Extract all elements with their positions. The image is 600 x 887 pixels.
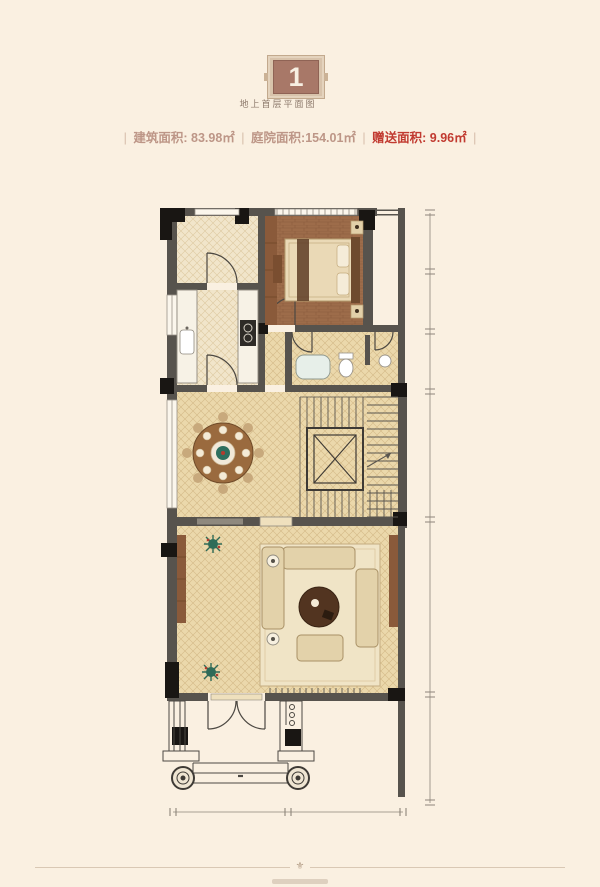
sideboard-symbol bbox=[197, 519, 243, 525]
column-base bbox=[172, 767, 194, 789]
entry-double-door bbox=[208, 701, 265, 729]
kitchen-sink bbox=[180, 330, 194, 354]
toilet bbox=[339, 359, 353, 377]
crest-ornament-icon: ⚜ bbox=[290, 862, 311, 872]
floor-plan-drawing bbox=[145, 195, 455, 825]
floorplan-page: { "page": {"background": "#faf0e1"}, "he… bbox=[0, 0, 600, 887]
opening-threshold bbox=[260, 517, 292, 526]
porch-steps bbox=[193, 763, 288, 783]
dimension-line-right bbox=[425, 210, 435, 805]
pillow bbox=[337, 273, 349, 295]
bathtub bbox=[296, 355, 330, 379]
pillow bbox=[337, 245, 349, 267]
armchair bbox=[297, 635, 343, 661]
room-entry-hall bbox=[177, 216, 258, 283]
bed-bench bbox=[273, 255, 282, 283]
potted-plant bbox=[202, 663, 220, 681]
stat-gift-area: 赠送面积: 9.96㎡ bbox=[372, 131, 467, 145]
stat-separator: | bbox=[359, 131, 368, 145]
stat-courtyard-area: 庭院面积:154.01㎡ bbox=[251, 131, 356, 145]
sofa-right bbox=[356, 569, 378, 647]
footer-divider: ⚜ bbox=[35, 862, 565, 872]
stat-construction-area: 建筑面积: 83.98㎡ bbox=[133, 131, 234, 145]
door-sill bbox=[211, 694, 262, 700]
divider-rule bbox=[35, 867, 290, 868]
potted-plant bbox=[204, 535, 222, 553]
bed-runner bbox=[297, 239, 309, 301]
floor-badge: 1 bbox=[273, 60, 319, 94]
area-stats-line: | 建筑面积: 83.98㎡ | 庭院面积:154.01㎡ | 赠送面积: 9.… bbox=[0, 127, 600, 146]
media-cabinet bbox=[389, 535, 398, 627]
floor-title: 地上首层平面图 bbox=[0, 97, 556, 110]
floor-badge-frame: 1 bbox=[267, 55, 325, 99]
dimension-line-bottom bbox=[170, 808, 406, 816]
room-hallway bbox=[265, 332, 285, 385]
headboard bbox=[351, 237, 360, 303]
stat-separator: | bbox=[470, 131, 479, 145]
washbasin bbox=[379, 355, 391, 367]
divider-rule bbox=[310, 867, 565, 868]
sofa-three-seat bbox=[283, 547, 355, 569]
stat-separator: | bbox=[121, 131, 130, 145]
elevator-shaft bbox=[307, 428, 363, 490]
stat-separator: | bbox=[238, 131, 247, 145]
coffee-table bbox=[299, 587, 339, 627]
footer-caption-faint bbox=[272, 879, 328, 884]
column-base bbox=[287, 767, 309, 789]
